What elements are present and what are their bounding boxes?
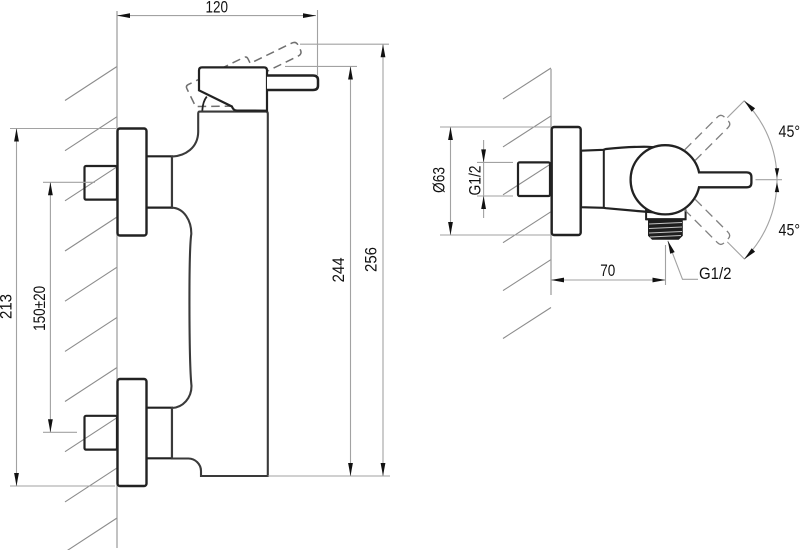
svg-text:244: 244 xyxy=(329,257,348,282)
svg-text:45°: 45° xyxy=(779,122,800,141)
svg-text:45°: 45° xyxy=(779,220,800,239)
svg-text:G1/2: G1/2 xyxy=(699,264,732,283)
svg-text:G1/2: G1/2 xyxy=(466,166,485,196)
svg-text:213: 213 xyxy=(0,294,16,319)
svg-text:256: 256 xyxy=(362,247,381,272)
svg-text:Ø63: Ø63 xyxy=(430,167,449,193)
svg-text:120: 120 xyxy=(206,0,229,17)
svg-text:150±20: 150±20 xyxy=(30,286,49,331)
svg-text:70: 70 xyxy=(600,261,615,280)
